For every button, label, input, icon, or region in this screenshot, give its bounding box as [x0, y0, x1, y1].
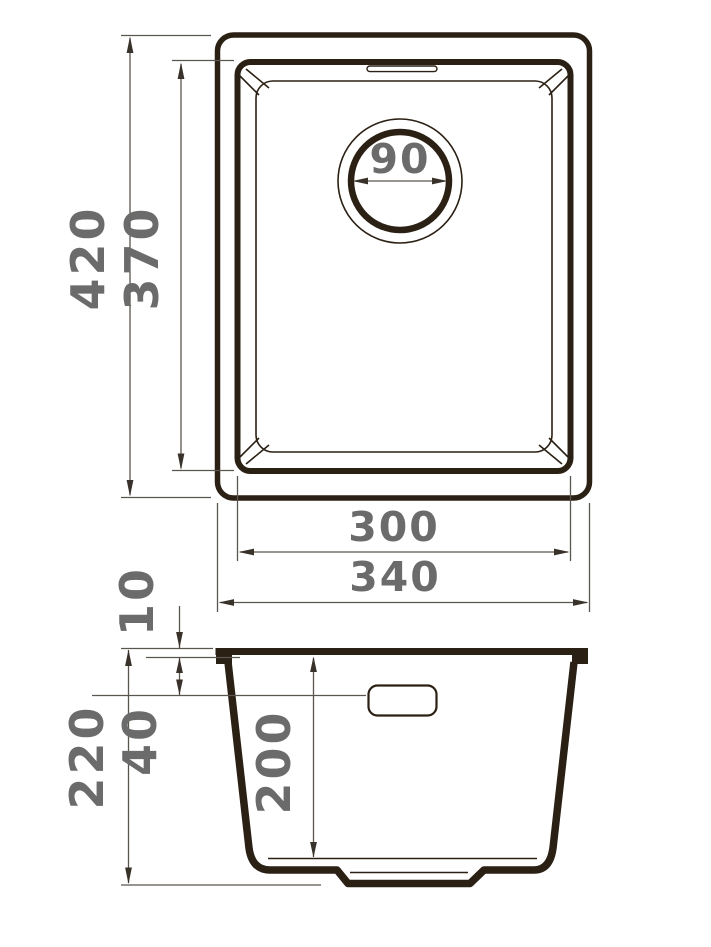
top-view-overflow-slot — [367, 66, 437, 72]
label-bowl-depth-200: 200 — [247, 709, 301, 814]
technical-drawing-page: 420 370 90 300 340 10 220 40 200 — [0, 0, 711, 947]
label-overflow-drop-40: 40 — [113, 706, 167, 776]
label-rim-height-10: 10 — [110, 566, 164, 636]
label-inner-height-370: 370 — [115, 205, 169, 310]
dimension-labels: 420 370 90 300 340 10 220 40 200 — [60, 135, 441, 815]
label-outer-width-340: 340 — [349, 553, 441, 601]
corner-chamfer-lines — [240, 69, 568, 464]
label-outer-height-420: 420 — [61, 205, 115, 310]
side-view-top-rim — [216, 648, 589, 655]
label-drain-diameter-90: 90 — [369, 135, 430, 183]
top-view-outer-edge — [218, 35, 590, 498]
label-inner-width-300: 300 — [348, 503, 440, 551]
side-view-overflow-opening — [369, 686, 437, 716]
label-total-height-220: 220 — [60, 704, 114, 809]
top-view-bowl-rim — [238, 62, 571, 471]
side-view-rim — [216, 648, 589, 664]
sink-drawing-canvas: 420 370 90 300 340 10 220 40 200 — [0, 0, 711, 947]
